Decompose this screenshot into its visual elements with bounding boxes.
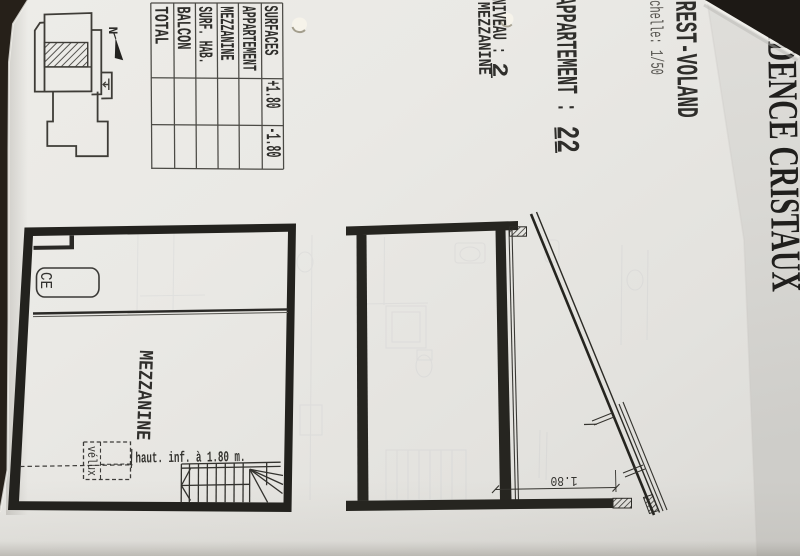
svg-text:CE: CE xyxy=(35,272,54,289)
svg-text:MEZZANINE: MEZZANINE xyxy=(130,350,156,441)
svg-text:22: 22 xyxy=(548,126,585,154)
svg-text:Echelle: 1/50: Echelle: 1/50 xyxy=(644,0,665,75)
svg-text:SURFACES: SURFACES xyxy=(259,5,281,55)
svg-text:APPARTEMENT :: APPARTEMENT : xyxy=(548,0,583,112)
svg-text:vélux: vélux xyxy=(84,446,98,476)
svg-text:+1.80: +1.80 xyxy=(259,80,282,108)
svg-text:N: N xyxy=(105,27,120,35)
svg-text:SURF. HAB.: SURF. HAB. xyxy=(193,6,215,63)
svg-text:haut. inf. à 1.80 m.: haut. inf. à 1.80 m. xyxy=(135,449,245,468)
svg-text:-1.80: -1.80 xyxy=(260,127,283,157)
svg-text:MEZZANINE: MEZZANINE xyxy=(215,6,237,60)
svg-text:CREST-VOLAND: CREST-VOLAND xyxy=(666,0,702,118)
svg-text:IDENCE CRISTAUX: IDENCE CRISTAUX xyxy=(758,29,800,292)
svg-text:1.80: 1.80 xyxy=(551,472,578,488)
svg-text:BALCON: BALCON xyxy=(172,6,194,49)
svg-text:TOTAL: TOTAL xyxy=(149,6,171,44)
svg-text:APPARTEMENT: APPARTEMENT xyxy=(237,6,260,71)
svg-text:MEZZANINE: MEZZANINE xyxy=(472,2,493,75)
